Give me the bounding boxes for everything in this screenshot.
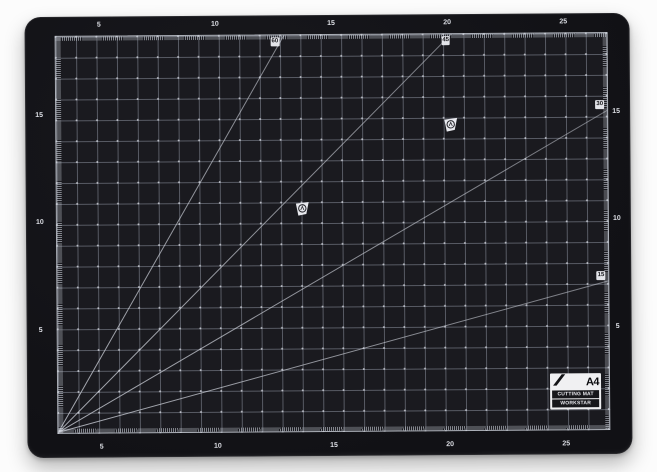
scale-number: 15 bbox=[330, 441, 338, 451]
cutting-mat: 5 10 15 20 25 5 10 15 20 25 15 10 5 15 1… bbox=[24, 13, 632, 458]
scale-number: 10 bbox=[211, 20, 219, 30]
mm-ruler-bottom bbox=[58, 425, 609, 433]
product-photo: 5 10 15 20 25 5 10 15 20 25 15 10 5 15 1… bbox=[0, 0, 657, 472]
angle-line-45 bbox=[58, 32, 610, 433]
scale-number: 5 bbox=[616, 321, 620, 331]
mm-ruler-top bbox=[56, 33, 607, 41]
product-label: A4 CUTTING MAT WORKSTAR bbox=[550, 373, 601, 409]
grid-surface: 60 45 30 15 bbox=[55, 32, 611, 434]
scale-number: 15 bbox=[35, 111, 43, 121]
scale-number: 20 bbox=[446, 440, 454, 450]
angle-value-tag: 45 bbox=[441, 36, 450, 45]
angle-value-tag: 30 bbox=[595, 100, 604, 109]
angle-value-tag: 60 bbox=[270, 37, 279, 46]
mat-size-text: A4 bbox=[586, 376, 599, 388]
scale-number: 5 bbox=[100, 443, 104, 453]
scale-left: 15 10 5 bbox=[30, 36, 51, 434]
scale-number: 5 bbox=[39, 326, 43, 336]
scale-number: 15 bbox=[327, 19, 335, 29]
scale-number: 20 bbox=[443, 18, 451, 28]
scale-number: 10 bbox=[214, 442, 222, 452]
mm-ruler-left bbox=[56, 37, 64, 433]
angle-line-15 bbox=[58, 219, 610, 433]
scale-number: 25 bbox=[562, 439, 570, 449]
angle-value-tag: 15 bbox=[597, 271, 606, 280]
scale-top: 5 10 15 20 25 bbox=[54, 17, 607, 31]
scale-number: 10 bbox=[613, 214, 621, 224]
scale-number: 15 bbox=[612, 107, 620, 117]
product-label-header: A4 bbox=[552, 375, 599, 389]
product-label-line1: CUTTING MAT bbox=[552, 390, 599, 398]
scale-number: 5 bbox=[97, 21, 101, 31]
scale-number: 10 bbox=[36, 218, 44, 228]
product-label-line2: WORKSTAR bbox=[552, 399, 599, 407]
blade-icon bbox=[552, 373, 568, 392]
brand-watermark-icon bbox=[294, 201, 311, 217]
scale-bottom: 5 10 15 20 25 bbox=[57, 439, 610, 453]
brand-watermark-icon bbox=[442, 117, 459, 133]
angle-line-30 bbox=[58, 32, 610, 433]
scale-number: 25 bbox=[559, 17, 567, 27]
